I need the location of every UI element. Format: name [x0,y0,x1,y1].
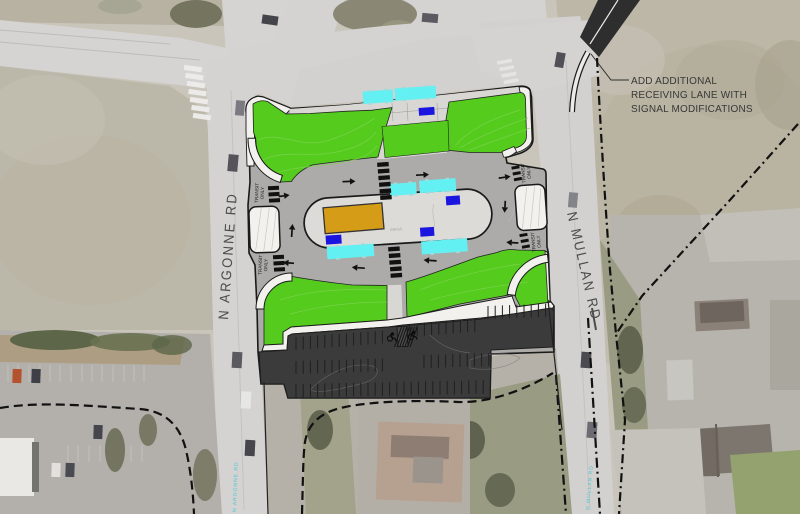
svg-text:ADD ADDITIONAL: ADD ADDITIONAL [631,76,717,87]
svg-text:SIGNAL MODIFICATIONS: SIGNAL MODIFICATIONS [631,104,753,115]
svg-text:RECEIVING LANE WITH: RECEIVING LANE WITH [631,90,747,101]
svg-text:ONLY: ONLY [263,258,268,271]
svg-text:ONLY: ONLY [260,186,265,199]
